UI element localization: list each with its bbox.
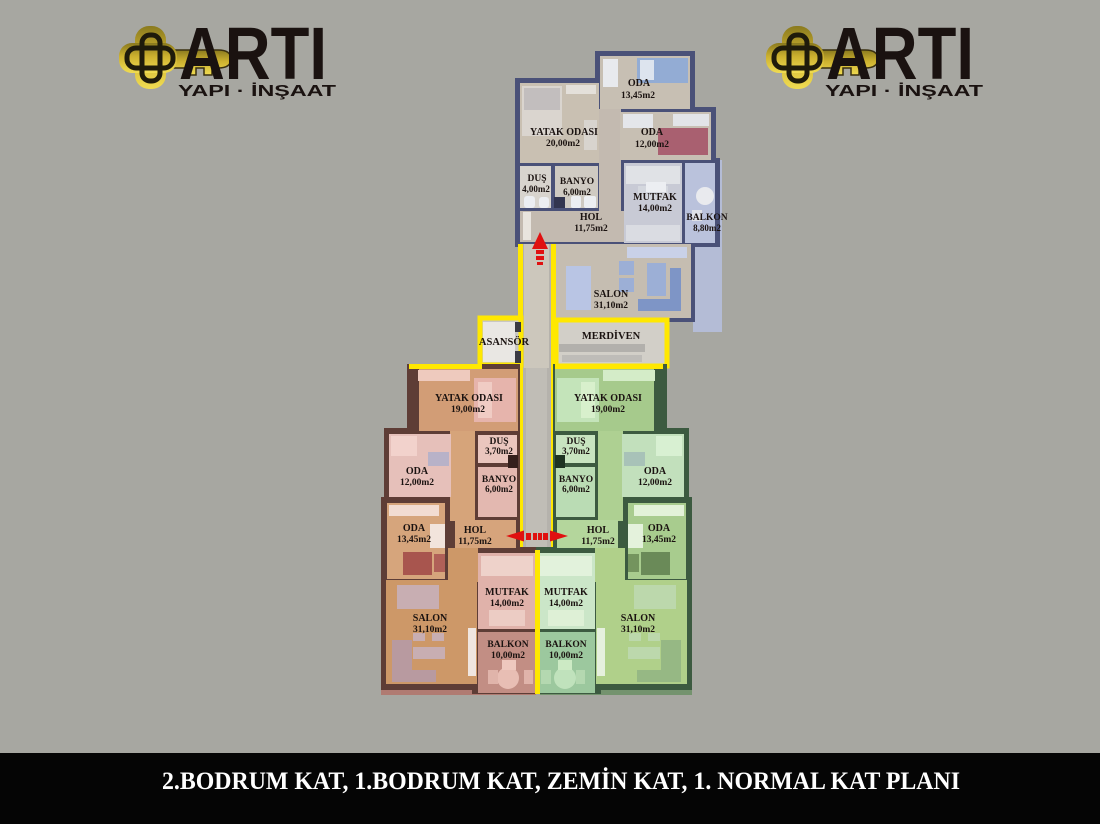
svg-text:DUŞ: DUŞ	[527, 174, 546, 184]
svg-text:ODA: ODA	[648, 523, 671, 534]
svg-text:HOL: HOL	[464, 525, 487, 536]
svg-text:ODA: ODA	[403, 523, 426, 534]
svg-text:31,10m2: 31,10m2	[594, 301, 628, 311]
svg-text:ODA: ODA	[406, 466, 429, 477]
svg-text:HOL: HOL	[580, 212, 603, 223]
svg-text:8,80m2: 8,80m2	[693, 223, 721, 233]
svg-text:20,00m2: 20,00m2	[546, 139, 580, 149]
svg-text:10,00m2: 10,00m2	[549, 651, 583, 661]
svg-text:19,00m2: 19,00m2	[451, 405, 485, 415]
svg-text:YATAK ODASI: YATAK ODASI	[530, 127, 598, 138]
svg-text:2.BODRUM KAT, 1.BODRUM KAT, ZE: 2.BODRUM KAT, 1.BODRUM KAT, ZEMİN KAT, 1…	[162, 767, 960, 795]
svg-text:BALKON: BALKON	[545, 640, 586, 650]
svg-text:3,70m2: 3,70m2	[562, 446, 590, 456]
svg-text:HOL: HOL	[587, 525, 610, 536]
svg-text:SALON: SALON	[594, 289, 629, 300]
svg-text:ODA: ODA	[628, 78, 651, 89]
svg-text:BALKON: BALKON	[686, 213, 727, 223]
svg-text:13,45m2: 13,45m2	[642, 535, 676, 545]
svg-text:BANYO: BANYO	[560, 177, 594, 187]
svg-text:12,00m2: 12,00m2	[400, 478, 434, 488]
svg-text:12,00m2: 12,00m2	[635, 140, 669, 150]
svg-text:14,00m2: 14,00m2	[638, 204, 672, 214]
svg-text:SALON: SALON	[413, 613, 448, 624]
svg-text:MERDİVEN: MERDİVEN	[582, 330, 641, 342]
svg-text:13,45m2: 13,45m2	[621, 91, 655, 101]
svg-text:ODA: ODA	[641, 127, 664, 138]
svg-text:19,00m2: 19,00m2	[591, 405, 625, 415]
svg-text:3,70m2: 3,70m2	[485, 446, 513, 456]
svg-text:11,75m2: 11,75m2	[458, 537, 492, 547]
svg-text:ASANSÖR: ASANSÖR	[479, 335, 530, 348]
svg-text:13,45m2: 13,45m2	[397, 535, 431, 545]
svg-text:10,00m2: 10,00m2	[491, 651, 525, 661]
svg-text:14,00m2: 14,00m2	[490, 599, 524, 609]
svg-text:11,75m2: 11,75m2	[574, 224, 608, 234]
svg-text:MUTFAK: MUTFAK	[485, 587, 529, 598]
svg-text:6,00m2: 6,00m2	[485, 484, 513, 494]
svg-text:YATAK ODASI: YATAK ODASI	[435, 393, 503, 404]
svg-text:31,10m2: 31,10m2	[413, 625, 447, 635]
svg-text:6,00m2: 6,00m2	[562, 484, 590, 494]
svg-text:11,75m2: 11,75m2	[581, 537, 615, 547]
svg-text:6,00m2: 6,00m2	[563, 187, 591, 197]
svg-text:MUTFAK: MUTFAK	[544, 587, 588, 598]
svg-text:MUTFAK: MUTFAK	[633, 192, 677, 203]
svg-text:4,00m2: 4,00m2	[522, 184, 550, 194]
svg-text:31,10m2: 31,10m2	[621, 625, 655, 635]
svg-text:SALON: SALON	[621, 613, 656, 624]
svg-text:YATAK ODASI: YATAK ODASI	[574, 393, 642, 404]
svg-text:BALKON: BALKON	[487, 640, 528, 650]
svg-text:14,00m2: 14,00m2	[549, 599, 583, 609]
svg-text:ODA: ODA	[644, 466, 667, 477]
svg-text:12,00m2: 12,00m2	[638, 478, 672, 488]
